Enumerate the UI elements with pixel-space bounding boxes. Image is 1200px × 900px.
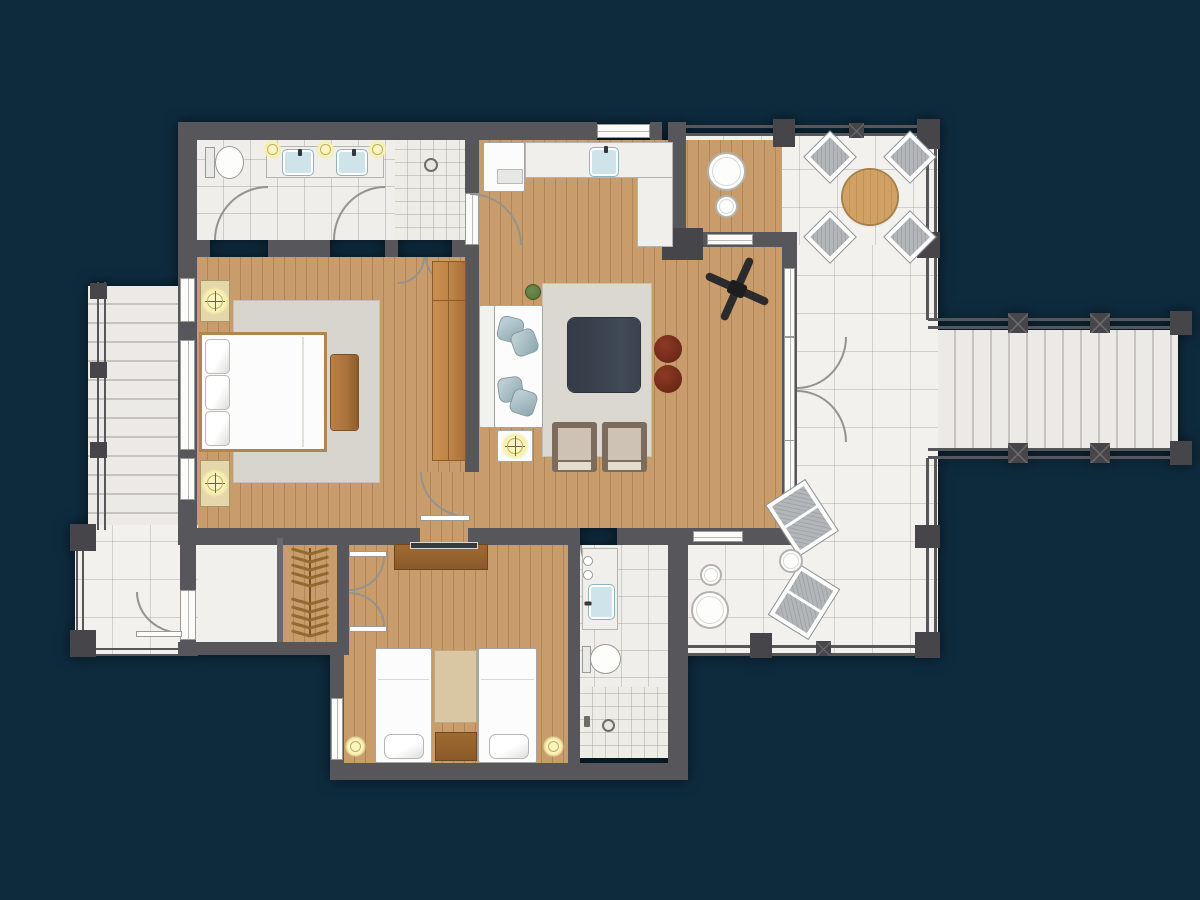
- wall-closet-east: [337, 538, 349, 642]
- wall-bedroom-east: [465, 257, 479, 472]
- door-leaf-master-hall: [420, 515, 470, 521]
- shower-valve: [584, 716, 590, 727]
- wall-vestibule-west: [180, 545, 196, 590]
- window-master-1: [180, 278, 195, 322]
- pouf: [654, 335, 682, 363]
- toilet-tank: [205, 147, 215, 178]
- terrace-post: [750, 633, 772, 658]
- round-side-table-small: [700, 564, 722, 586]
- french-door-opening: [784, 337, 795, 442]
- coffee-table: [568, 318, 640, 392]
- twin-bed: [478, 648, 537, 763]
- terrace-post: [773, 119, 795, 147]
- clothes-hanger: [292, 614, 328, 622]
- bathroom2-sink: [589, 585, 614, 619]
- terrace-railing-east-lower: [926, 458, 937, 656]
- railing-post: [1170, 311, 1192, 335]
- kitchen-counter-right: [637, 177, 673, 247]
- pouf: [654, 365, 682, 393]
- bed-pillow: [205, 339, 230, 374]
- ceiling-light: [263, 140, 282, 159]
- window-bedroom2: [331, 698, 343, 760]
- stairs-right-railing-bottom: [928, 448, 1190, 459]
- railing-post: [1090, 443, 1110, 463]
- bed-pillow: [205, 411, 230, 446]
- clothes-hanger: [292, 572, 328, 580]
- wall-bedroom2-bath2: [568, 545, 580, 775]
- lounge-side-table: [779, 549, 803, 573]
- railing-post: [90, 362, 107, 378]
- bed-bench: [331, 355, 358, 430]
- floor-lamp: [543, 736, 564, 757]
- railing-post: [1090, 313, 1110, 333]
- railing-post: [1008, 443, 1028, 463]
- wall-top-east: [650, 122, 662, 140]
- wall-south-band: [178, 528, 420, 545]
- window-living-north: [707, 234, 753, 245]
- bed-pillow: [384, 734, 424, 759]
- wall-bath1-south: [385, 240, 398, 257]
- terrace-post: [849, 123, 864, 138]
- armchair-cushion: [558, 428, 591, 460]
- wall-bath2-east: [668, 538, 688, 775]
- shower-head: [602, 719, 615, 732]
- clothes-hanger: [292, 556, 328, 564]
- landing-post: [70, 524, 96, 551]
- vanity-accessory: [583, 556, 593, 566]
- window-living-south: [693, 531, 743, 542]
- bed-pillow: [205, 375, 230, 410]
- round-side-table-large: [691, 591, 729, 629]
- clothes-hanger: [292, 580, 328, 588]
- armchair: [602, 422, 647, 472]
- closet-hanger-rail: [292, 548, 328, 638]
- railing-post: [90, 442, 107, 458]
- door-leaf-closet-b: [349, 626, 387, 632]
- wall-bath1-south: [268, 240, 330, 257]
- window-master-2: [180, 340, 195, 450]
- bathroom-2-shower-floor: [580, 687, 668, 758]
- wall-entry-west: [465, 122, 479, 193]
- wardrobe-cabinet: [433, 262, 465, 460]
- terrace-post: [816, 641, 831, 656]
- nightstand: [436, 733, 476, 760]
- terrace-railing-north: [680, 125, 938, 136]
- floor-lamp: [345, 736, 366, 757]
- wall-vestibule-closet: [277, 538, 283, 642]
- railing-post: [1170, 441, 1192, 465]
- bedroom2-rug: [434, 650, 477, 723]
- stairs-right-railing-top: [928, 318, 1190, 329]
- window-living-east-1: [784, 268, 795, 337]
- dining-table: [843, 170, 897, 224]
- nightstand-lamp: [201, 287, 229, 315]
- ceiling-light: [368, 140, 387, 159]
- floor-plan-canvas: [0, 0, 1200, 900]
- landing-post: [70, 630, 96, 657]
- round-side-table-large: [707, 152, 746, 191]
- nightstand-lamp: [201, 469, 229, 497]
- clothes-hanger: [292, 564, 328, 572]
- bathroom-1-shower-floor: [395, 140, 465, 240]
- clothes-hanger: [292, 548, 328, 556]
- clothes-hanger: [292, 630, 328, 638]
- window-master-3: [180, 458, 195, 500]
- toilet: [590, 644, 621, 674]
- wall-top: [178, 122, 597, 140]
- potted-plant: [525, 284, 541, 300]
- stairs-right: [938, 330, 1178, 448]
- clothes-hanger: [292, 598, 328, 606]
- armchair-footrest: [608, 462, 641, 470]
- refrigerator-handle: [497, 169, 523, 184]
- stairs-left-railing: [97, 282, 106, 530]
- shower-head: [424, 158, 438, 172]
- vestibule-door-opening: [180, 590, 196, 640]
- ceiling-light: [316, 140, 335, 159]
- door-leaf-landing: [136, 631, 182, 637]
- wall-bath1-south: [197, 240, 210, 257]
- sink-right: [337, 150, 367, 175]
- toilet: [215, 146, 244, 179]
- railing-post: [90, 283, 107, 299]
- terrace-post: [915, 525, 940, 548]
- vanity-accessory: [583, 570, 593, 580]
- refrigerator: [483, 142, 525, 192]
- bed-pillow: [489, 734, 529, 759]
- sink-left: [283, 150, 313, 175]
- terrace-railing-south: [688, 645, 938, 656]
- armchair-cushion: [608, 428, 641, 460]
- master-bed: [199, 332, 327, 452]
- table-lamp: [501, 432, 529, 460]
- armchair: [552, 422, 597, 472]
- door-leaf-closet-a: [349, 551, 387, 557]
- clothes-hanger: [292, 622, 328, 630]
- railing-post: [1008, 313, 1028, 333]
- vestibule-floor: [196, 538, 277, 642]
- entry-door-opening: [597, 124, 650, 138]
- duvet-fold-line: [302, 337, 304, 447]
- round-side-table-small: [715, 195, 738, 218]
- twin-bed: [375, 648, 432, 763]
- armchair-footrest: [558, 462, 591, 470]
- terrace-post: [915, 632, 940, 658]
- tv-on-dresser: [410, 542, 478, 549]
- wall-vestibule-south: [178, 642, 349, 655]
- clothes-hanger: [292, 606, 328, 614]
- wall-south-band: [468, 528, 580, 545]
- wall-south-exterior: [330, 763, 688, 780]
- kitchen-sink: [590, 148, 618, 176]
- floor-plan: [0, 0, 1200, 900]
